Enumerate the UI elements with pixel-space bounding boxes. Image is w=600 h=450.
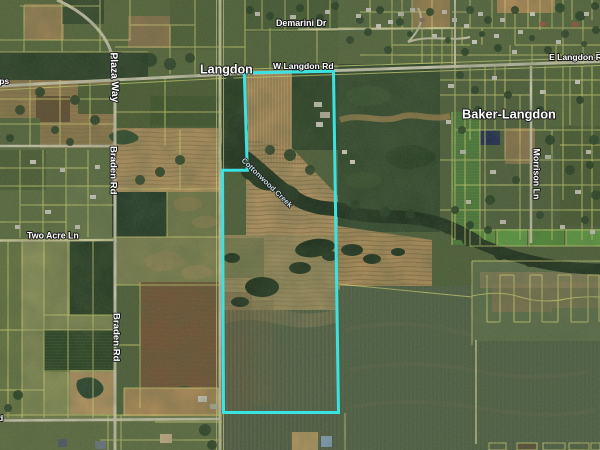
svg-text:Two Acre Ln: Two Acre Ln [27,230,79,240]
svg-text:W Langdon Rd: W Langdon Rd [273,61,334,71]
svg-text:pps: pps [0,76,9,86]
svg-text:Baker-Langdon: Baker-Langdon [462,107,556,122]
svg-text:Demarini Dr: Demarini Dr [276,18,327,28]
svg-text:Morrison Ln: Morrison Ln [532,149,542,200]
svg-text:Braden Rd: Braden Rd [108,146,119,195]
svg-text:d: d [0,413,3,423]
svg-text:Braden Rd: Braden Rd [111,313,122,362]
svg-text:E Langdon Rd: E Langdon Rd [549,52,600,62]
svg-text:Langdon: Langdon [200,63,253,77]
svg-text:Plaza Way: Plaza Way [108,52,121,103]
